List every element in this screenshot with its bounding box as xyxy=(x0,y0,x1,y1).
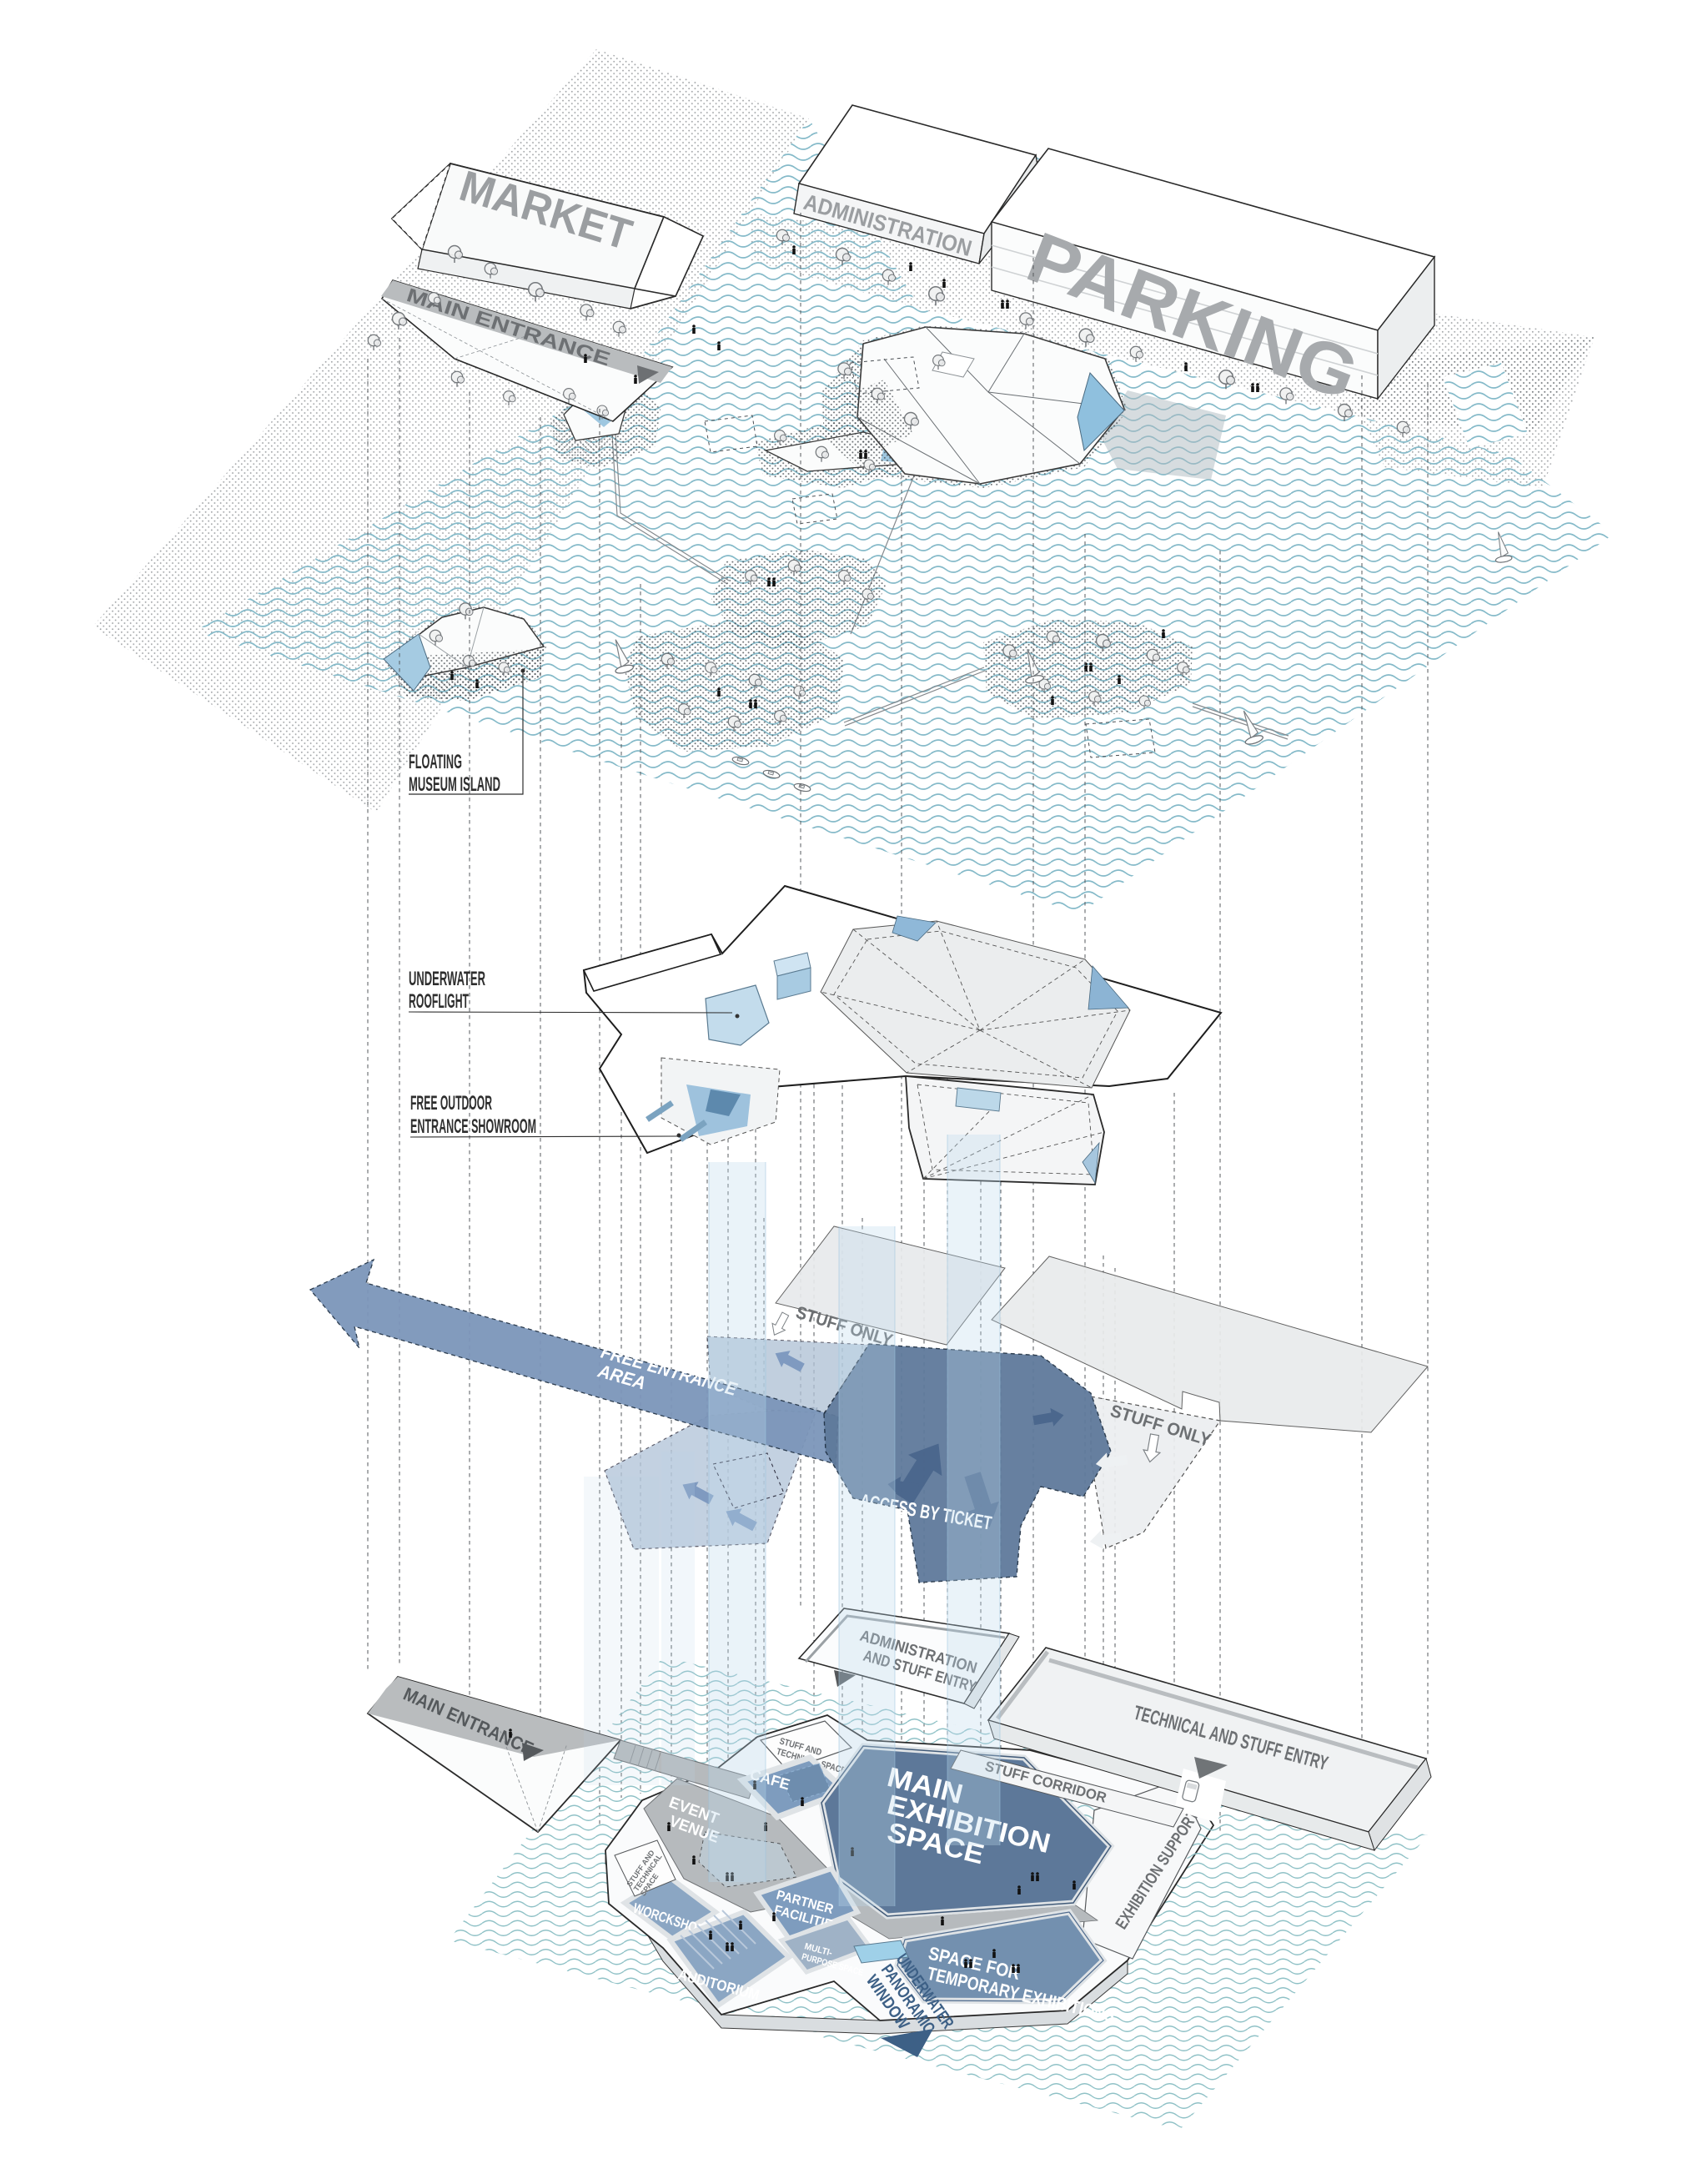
svg-text:MUSEUM ISLAND: MUSEUM ISLAND xyxy=(409,773,500,796)
svg-text:UNDERWATER: UNDERWATER xyxy=(409,968,485,990)
svg-text:FLOATING: FLOATING xyxy=(409,751,462,773)
svg-text:FREE OUTDOOR: FREE OUTDOOR xyxy=(410,1092,492,1115)
svg-text:ENTRANCE SHOWROOM: ENTRANCE SHOWROOM xyxy=(410,1115,536,1138)
svg-text:ROOFLIGHT: ROOFLIGHT xyxy=(409,990,469,1013)
